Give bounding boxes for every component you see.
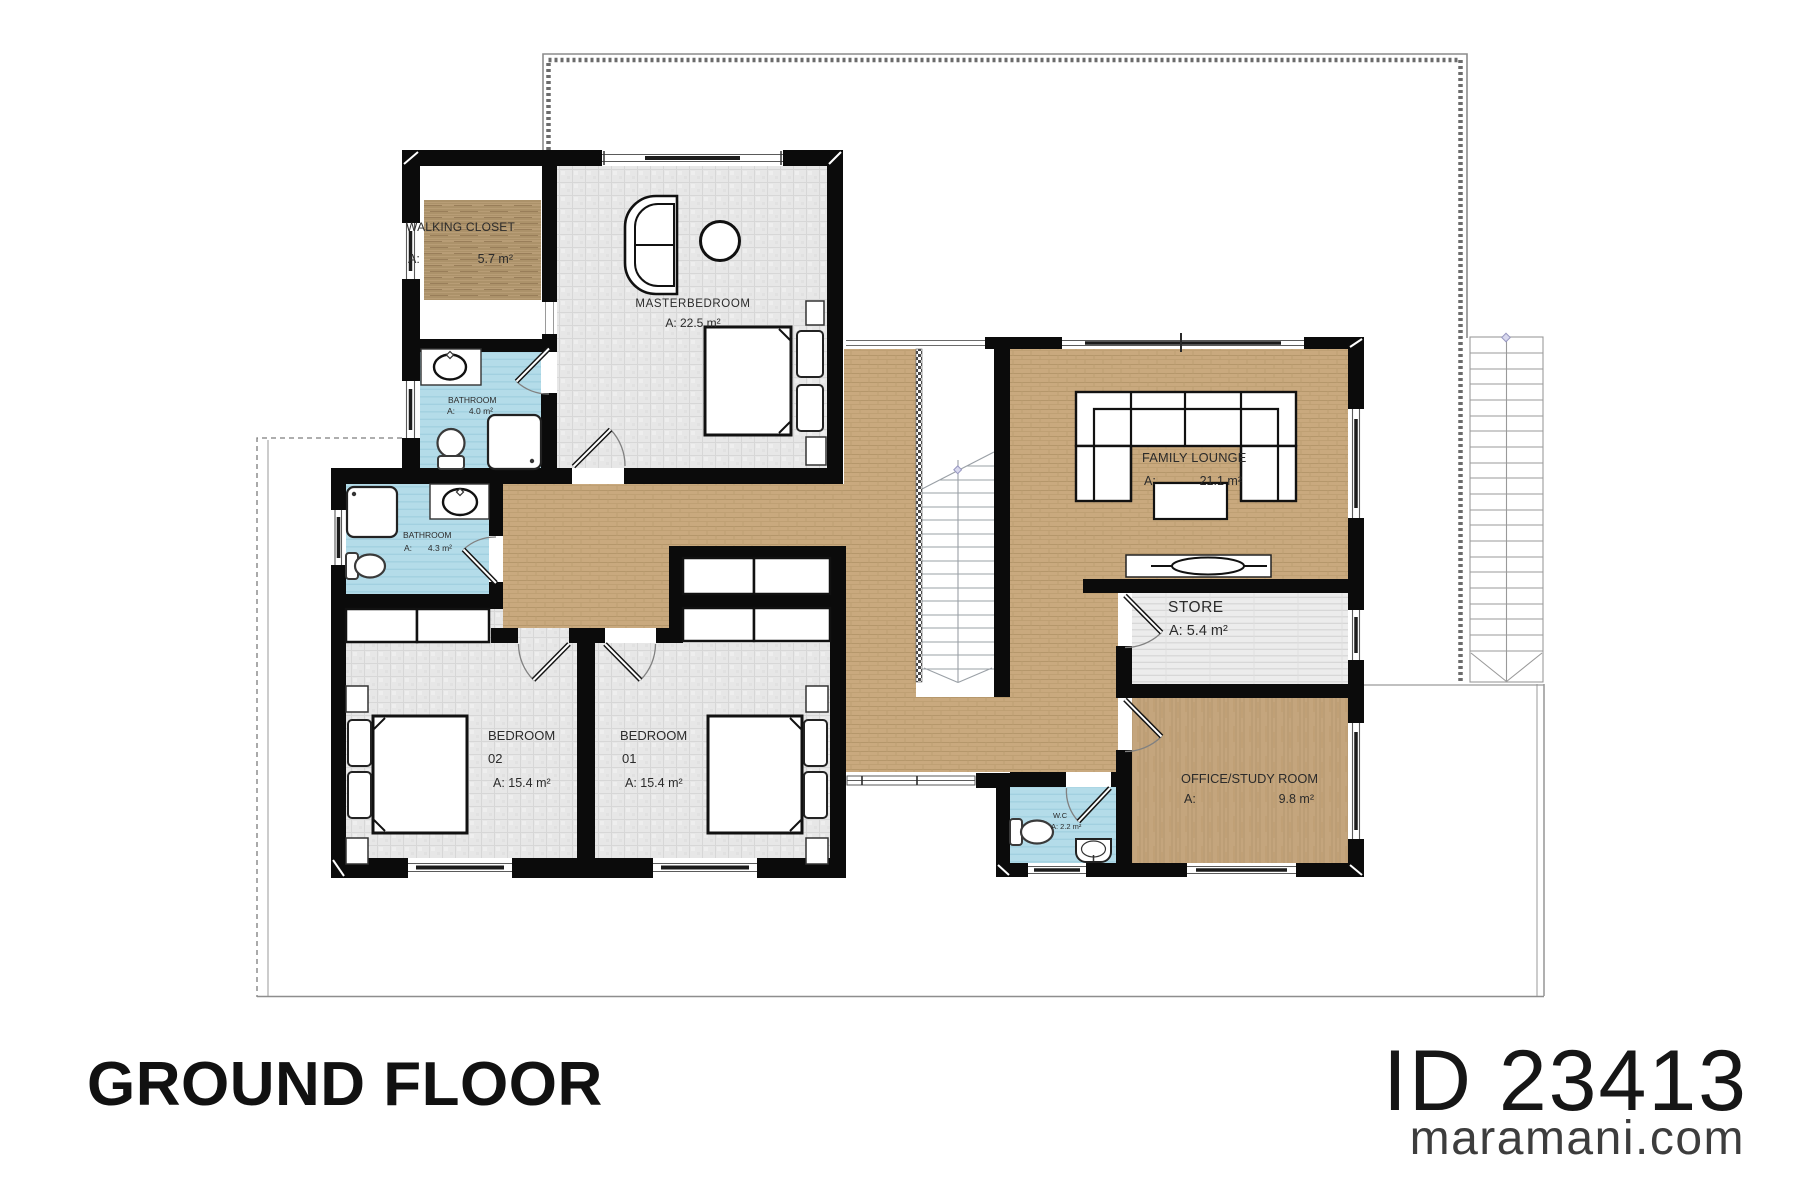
svg-text:FAMILY LOUNGE: FAMILY LOUNGE [1142, 450, 1247, 465]
svg-text:A:: A: [447, 406, 455, 416]
svg-text:MASTERBEDROOM: MASTERBEDROOM [635, 298, 750, 310]
svg-text:GROUND FLOOR: GROUND FLOOR [87, 1050, 603, 1119]
svg-text:BATHROOM: BATHROOM [403, 530, 451, 540]
svg-text:A: 15.4 m²: A: 15.4 m² [625, 776, 683, 790]
svg-text:A: 2.2 m²: A: 2.2 m² [1051, 822, 1082, 831]
svg-text:9.8 m²: 9.8 m² [1279, 792, 1314, 806]
svg-text:OFFICE/STUDY ROOM: OFFICE/STUDY ROOM [1181, 771, 1318, 786]
svg-text:02: 02 [488, 751, 502, 766]
svg-text:4.3 m²: 4.3 m² [428, 543, 452, 553]
svg-text:BEDROOM: BEDROOM [488, 728, 555, 743]
svg-text:BATHROOM: BATHROOM [448, 395, 496, 405]
svg-text:A:: A: [408, 252, 420, 266]
svg-text:WALKING CLOSET: WALKING CLOSET [406, 220, 516, 234]
svg-text:4.0 m²: 4.0 m² [469, 406, 493, 416]
svg-text:W.C: W.C [1053, 811, 1068, 820]
svg-text:A: 5.4 m²: A: 5.4 m² [1169, 623, 1228, 639]
svg-text:01: 01 [622, 751, 636, 766]
svg-text:21.1 m²: 21.1 m² [1200, 474, 1242, 488]
svg-text:STORE: STORE [1168, 599, 1224, 616]
svg-text:A:: A: [404, 543, 412, 553]
svg-text:A:: A: [1144, 474, 1156, 488]
svg-text:BEDROOM: BEDROOM [620, 728, 687, 743]
svg-text:A: 15.4 m²: A: 15.4 m² [493, 776, 551, 790]
svg-text:A: 22.5 m²: A: 22.5 m² [665, 316, 720, 330]
svg-text:5.7 m²: 5.7 m² [478, 252, 513, 266]
svg-text:A:: A: [1184, 792, 1196, 806]
svg-text:maramani.com: maramani.com [1410, 1112, 1745, 1165]
